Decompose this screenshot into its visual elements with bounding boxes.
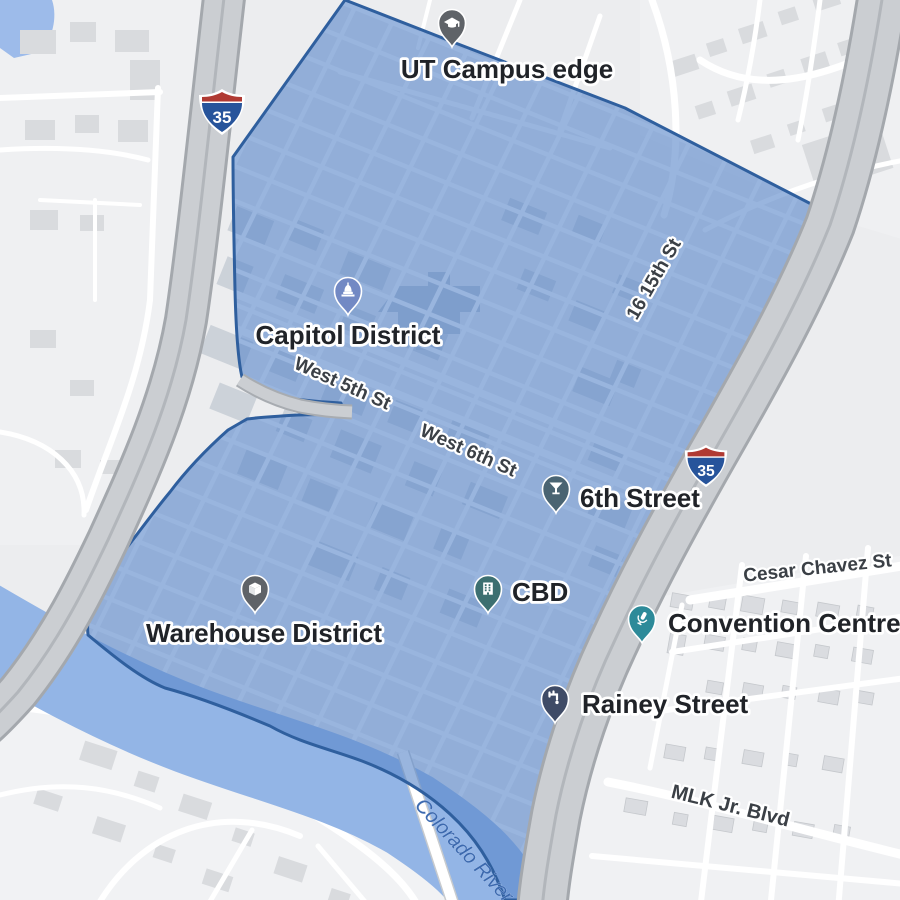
label-rainey-street: Rainey Street (582, 689, 749, 719)
label-convention-centre: Convention Centre (668, 608, 900, 638)
label-cbd: CBD (512, 577, 568, 607)
label-6th-street: 6th Street (580, 483, 700, 513)
label-ut-campus-edge: UT Campus edge (401, 54, 613, 84)
shield-route-number: 35 (213, 108, 232, 127)
building-icon (483, 583, 493, 595)
shield-route-number: 35 (697, 463, 715, 480)
label-capitol-district: Capitol District (256, 320, 441, 350)
label-warehouse-district: Warehouse District (146, 618, 382, 648)
map-canvas[interactable]: 35 35 West 5th St West 6th St 16 15th St… (0, 0, 900, 900)
